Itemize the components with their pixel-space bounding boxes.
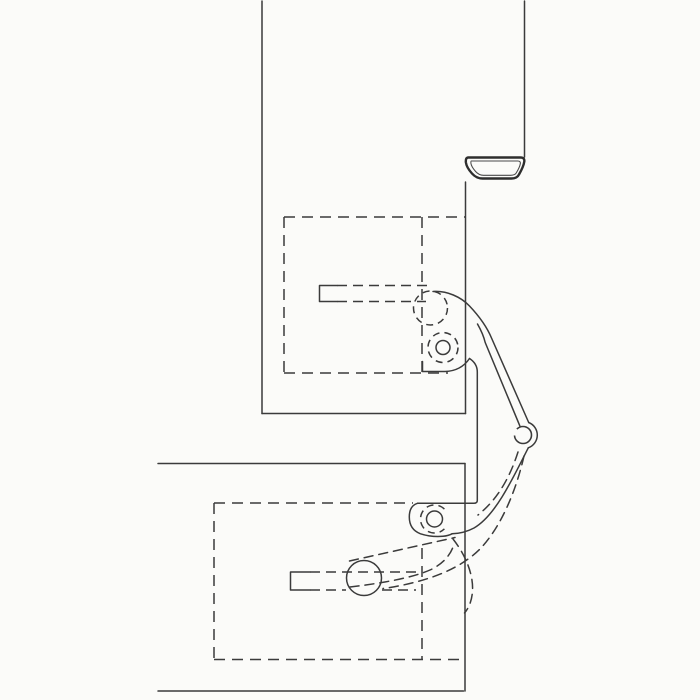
knuckle-pin-circle <box>427 511 443 527</box>
drawing-canvas <box>0 0 700 700</box>
upper-roller-circle <box>414 291 448 325</box>
ghost-swing-curve <box>383 456 524 589</box>
door-leaf-profile <box>158 464 465 692</box>
pivot-wrap-arc <box>528 423 537 448</box>
lower-roller-circle <box>347 561 382 596</box>
ghost-leaf-arc <box>453 539 473 613</box>
arm-lower-outer-edge <box>452 448 528 534</box>
hinge-arm-inner-edge <box>478 324 520 426</box>
hinge-technical-drawing <box>0 0 700 700</box>
lower-mortise-box <box>214 503 463 660</box>
hinge-motion-ghost <box>350 452 525 613</box>
cup-bottom-edge <box>423 359 470 372</box>
knuckle-ring-arc <box>421 505 445 533</box>
ghost-link-bottom-line <box>350 546 454 588</box>
upper-mortise-box <box>284 217 465 373</box>
upper-slot-bracket <box>320 286 338 302</box>
door-frame-profile <box>262 1 525 414</box>
pivot-pin-circle <box>515 427 532 444</box>
center-part-edge <box>465 359 477 504</box>
door-seal-inner <box>471 161 520 175</box>
cam-circle-inner <box>436 341 450 355</box>
ghost-link-top-line <box>350 538 456 562</box>
knuckle-cup-outline <box>409 503 452 536</box>
lower-slot-bracket <box>291 572 311 590</box>
ghost-arm-inner-line <box>478 452 518 515</box>
cam-circle-ring <box>428 333 458 363</box>
